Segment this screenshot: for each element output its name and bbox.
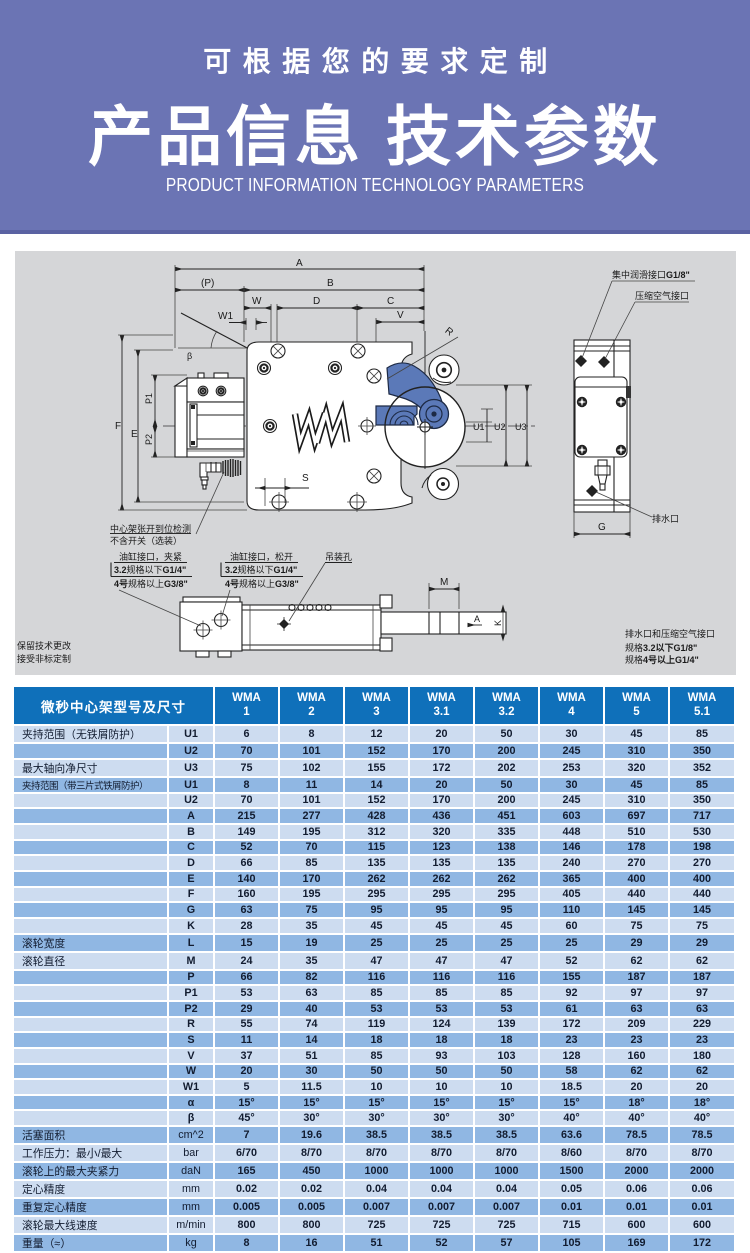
svg-text:P2: P2 — [144, 434, 154, 445]
svg-text:接受非标定制: 接受非标定制 — [17, 653, 71, 664]
svg-text:吊装孔: 吊装孔 — [325, 551, 352, 562]
svg-text:M: M — [440, 577, 448, 588]
svg-text:压缩空气接口: 压缩空气接口 — [635, 290, 689, 301]
svg-text:3.2规格以下G1/4": 3.2规格以下G1/4" — [114, 564, 186, 575]
svg-text:W1: W1 — [218, 311, 233, 322]
svg-text:U1: U1 — [473, 422, 485, 432]
svg-text:G: G — [598, 522, 606, 533]
svg-text:不含开关（选装）: 不含开关（选装） — [110, 535, 182, 546]
svg-text:油缸接口，松开: 油缸接口，松开 — [230, 551, 293, 562]
svg-text:中心架张开到位检测: 中心架张开到位检测 — [110, 523, 191, 534]
svg-text:油缸接口，夹紧: 油缸接口，夹紧 — [119, 551, 182, 562]
svg-text:F: F — [115, 421, 121, 432]
svg-text:U2: U2 — [494, 422, 506, 432]
svg-text:β: β — [187, 351, 192, 361]
svg-text:C: C — [387, 296, 394, 307]
svg-text:(P): (P) — [201, 278, 214, 289]
svg-text:E: E — [131, 429, 138, 440]
svg-text:排水口: 排水口 — [652, 513, 679, 524]
svg-text:保留技术更改: 保留技术更改 — [17, 640, 71, 651]
svg-text:3.2规格以下G1/4": 3.2规格以下G1/4" — [225, 564, 297, 575]
svg-text:4号规格以上G3/8": 4号规格以上G3/8" — [225, 578, 299, 589]
svg-text:A: A — [474, 614, 480, 624]
svg-text:V: V — [397, 310, 404, 321]
svg-text:排水口和压缩空气接口: 排水口和压缩空气接口 — [625, 628, 715, 639]
svg-text:集中润滑接口G1/8": 集中润滑接口G1/8" — [612, 269, 690, 280]
svg-text:P1: P1 — [144, 393, 154, 404]
svg-text:S: S — [302, 473, 309, 484]
svg-text:K: K — [493, 620, 503, 626]
svg-text:U3: U3 — [515, 422, 527, 432]
svg-text:规格3.2以下G1/8": 规格3.2以下G1/8" — [625, 642, 697, 653]
svg-text:W: W — [252, 296, 262, 307]
svg-text:规格4号以上G1/4": 规格4号以上G1/4" — [625, 654, 699, 665]
svg-text:B: B — [327, 278, 334, 289]
svg-text:A: A — [296, 258, 303, 269]
svg-text:4号规格以上G3/8": 4号规格以上G3/8" — [114, 578, 188, 589]
svg-text:D: D — [313, 296, 320, 307]
